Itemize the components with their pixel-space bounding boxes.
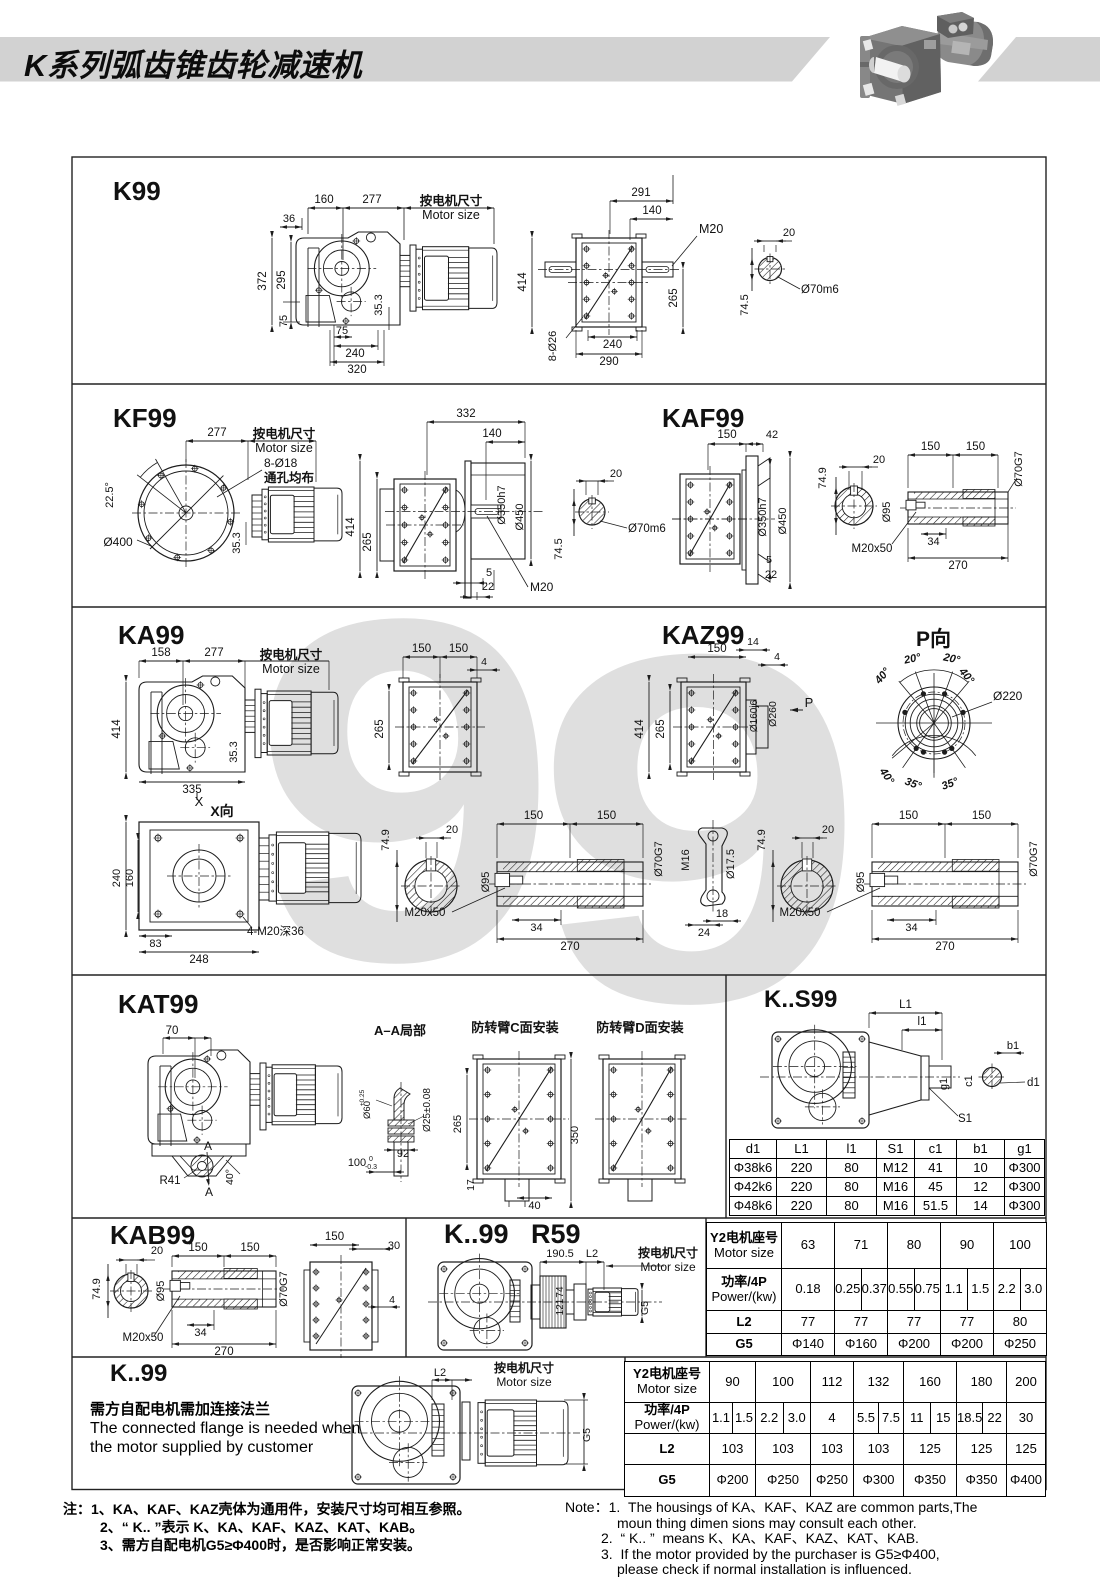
svg-text:24: 24: [698, 927, 710, 939]
svg-text:265: 265: [668, 288, 680, 307]
svg-text:4: 4: [774, 651, 780, 663]
svg-text:Ø450: Ø450: [514, 504, 526, 531]
svg-text:按电机尺寸: 按电机尺寸: [494, 1360, 554, 1375]
svg-text:265: 265: [452, 1115, 464, 1133]
svg-text:Ø95: Ø95: [480, 872, 492, 893]
svg-text:Ø25±0.08: Ø25±0.08: [422, 1088, 433, 1132]
svg-text:40: 40: [528, 1200, 540, 1212]
svg-text:c1: c1: [963, 1075, 975, 1087]
svg-text:42: 42: [766, 429, 778, 441]
svg-text:35.3: 35.3: [231, 532, 243, 553]
svg-text:414: 414: [111, 719, 123, 739]
svg-text:150: 150: [325, 1231, 344, 1243]
svg-text:Motor size: Motor size: [255, 441, 313, 455]
svg-text:8-Ø18: 8-Ø18: [264, 456, 298, 470]
svg-text:414: 414: [634, 719, 646, 739]
svg-text:248: 248: [189, 954, 208, 966]
svg-text:Motor size: Motor size: [262, 662, 320, 676]
svg-text:34: 34: [194, 1327, 206, 1339]
svg-text:M16: M16: [680, 849, 692, 870]
svg-text:240: 240: [111, 869, 123, 887]
svg-text:265: 265: [655, 719, 667, 738]
svg-text:0: 0: [369, 1156, 373, 1163]
svg-text:M20x50: M20x50: [123, 1332, 164, 1344]
svg-text:320: 320: [347, 364, 366, 376]
svg-text:4: 4: [481, 656, 487, 668]
svg-text:270: 270: [214, 1346, 233, 1358]
svg-text:150: 150: [899, 810, 918, 822]
svg-text:277: 277: [362, 194, 381, 206]
svg-text:Ø450: Ø450: [777, 508, 789, 535]
svg-text:20: 20: [610, 468, 622, 480]
svg-text:防转臂C面安装: 防转臂C面安装: [471, 1020, 558, 1035]
svg-text:X: X: [195, 794, 204, 809]
svg-text:Ø160j6: Ø160j6: [749, 699, 760, 732]
svg-text:40°: 40°: [956, 665, 977, 687]
svg-text:74.9: 74.9: [756, 829, 768, 850]
svg-text:Ø70G7: Ø70G7: [278, 1271, 290, 1306]
svg-text:100: 100: [348, 1157, 366, 1169]
svg-text:d1: d1: [1027, 1077, 1040, 1089]
svg-text:150: 150: [412, 643, 431, 655]
svg-text:18: 18: [716, 908, 728, 920]
svg-text:34: 34: [905, 922, 917, 934]
svg-text:A–A局部: A–A局部: [374, 1023, 426, 1038]
svg-text:350: 350: [569, 1126, 581, 1144]
svg-text:17: 17: [465, 1179, 477, 1191]
svg-text:34: 34: [927, 536, 939, 548]
svg-text:G5: G5: [639, 1301, 651, 1315]
svg-text:5: 5: [766, 554, 772, 566]
svg-text:20: 20: [822, 824, 834, 836]
svg-text:g1: g1: [938, 1078, 950, 1090]
svg-text:160: 160: [124, 869, 136, 887]
svg-text:Ø70m6: Ø70m6: [801, 284, 839, 296]
svg-text:40°: 40°: [224, 1169, 236, 1185]
svg-text:Ø220: Ø220: [993, 689, 1023, 703]
svg-text:414: 414: [345, 517, 357, 537]
svg-text:277: 277: [204, 647, 223, 659]
svg-text:8-Ø26: 8-Ø26: [547, 331, 559, 362]
svg-text:M20x50: M20x50: [405, 907, 446, 919]
svg-text:75: 75: [336, 325, 348, 337]
svg-text:20: 20: [873, 454, 885, 466]
svg-text:121: 121: [555, 1298, 566, 1315]
svg-text:L2: L2: [586, 1248, 598, 1260]
svg-text:70: 70: [166, 1025, 179, 1037]
svg-text:270: 270: [560, 941, 579, 953]
svg-text:-0.3: -0.3: [365, 1164, 377, 1171]
svg-text:按电机尺寸: 按电机尺寸: [638, 1245, 698, 1260]
svg-text:Motor size: Motor size: [496, 1375, 552, 1389]
svg-text:5: 5: [486, 567, 492, 579]
svg-text:240: 240: [345, 348, 364, 360]
svg-text:22.5°: 22.5°: [104, 482, 116, 508]
svg-text:30: 30: [388, 1240, 400, 1252]
svg-text:22: 22: [765, 569, 777, 581]
svg-text:150: 150: [972, 810, 991, 822]
svg-text:150: 150: [240, 1242, 259, 1254]
svg-text:20: 20: [446, 824, 458, 836]
svg-text:150: 150: [449, 643, 468, 655]
svg-text:414: 414: [517, 272, 529, 292]
svg-text:332: 332: [456, 408, 475, 420]
svg-text:Ø70G7: Ø70G7: [653, 841, 665, 876]
svg-text:140: 140: [482, 428, 501, 440]
svg-text:Ø95: Ø95: [155, 1281, 167, 1302]
svg-text:372: 372: [257, 271, 269, 290]
svg-text:l1: l1: [918, 1016, 927, 1028]
svg-text:74.9: 74.9: [817, 467, 829, 488]
svg-text:14: 14: [747, 636, 759, 648]
svg-text:Motor size: Motor size: [640, 1260, 696, 1274]
svg-text:X向: X向: [210, 803, 233, 819]
svg-text:74.5: 74.5: [553, 538, 565, 559]
svg-text:291: 291: [631, 187, 650, 199]
svg-text:S1: S1: [958, 1113, 972, 1125]
svg-text:4-M20深36: 4-M20深36: [247, 924, 304, 938]
svg-text:Ø400: Ø400: [103, 535, 133, 549]
svg-text:74.9: 74.9: [91, 1278, 103, 1299]
svg-text:4: 4: [389, 1294, 395, 1306]
svg-text:150: 150: [597, 810, 616, 822]
svg-text:按电机尺寸: 按电机尺寸: [420, 193, 483, 208]
svg-text:36: 36: [283, 213, 295, 225]
svg-text:M20: M20: [699, 222, 723, 236]
svg-text:35°: 35°: [940, 775, 960, 792]
svg-text:M20x50: M20x50: [780, 907, 821, 919]
svg-text:M20x50: M20x50: [852, 543, 893, 555]
svg-text:150: 150: [921, 441, 940, 453]
svg-text:L1: L1: [899, 999, 912, 1011]
svg-text:277: 277: [207, 427, 226, 439]
svg-text:Motor size: Motor size: [422, 208, 480, 222]
svg-text:92: 92: [397, 1148, 409, 1160]
svg-text:Ø70m6: Ø70m6: [628, 523, 666, 535]
svg-text:20°: 20°: [902, 651, 922, 667]
svg-text:35.3: 35.3: [228, 741, 240, 762]
svg-text:P: P: [805, 695, 814, 710]
svg-text:A: A: [204, 1139, 212, 1153]
svg-text:Ø260: Ø260: [767, 701, 779, 727]
svg-text:M20: M20: [530, 580, 554, 594]
svg-text:265: 265: [362, 532, 374, 551]
svg-text:150: 150: [524, 810, 543, 822]
svg-text:Ø70G7: Ø70G7: [1028, 841, 1040, 876]
svg-text:270: 270: [935, 941, 954, 953]
svg-text:通孔均布: 通孔均布: [264, 470, 315, 485]
svg-text:G5: G5: [581, 1428, 593, 1442]
svg-text:35°: 35°: [903, 776, 923, 793]
svg-text:防转臂D面安装: 防转臂D面安装: [596, 1020, 683, 1035]
svg-text:34: 34: [530, 922, 542, 934]
svg-text:R41: R41: [159, 1175, 180, 1187]
svg-text:74: 74: [555, 1286, 566, 1298]
svg-text:40°: 40°: [876, 765, 896, 787]
svg-text:Ø17.5: Ø17.5: [725, 849, 737, 879]
svg-text:Ø350h7: Ø350h7: [496, 485, 508, 524]
svg-text:Ø95: Ø95: [881, 502, 893, 523]
svg-text:b1: b1: [1007, 1040, 1019, 1052]
svg-text:Ø350h7: Ø350h7: [757, 497, 769, 536]
svg-text:A: A: [205, 1185, 213, 1199]
svg-text:40°: 40°: [872, 665, 893, 687]
svg-text:按电机尺寸: 按电机尺寸: [253, 426, 316, 441]
svg-text:35.3: 35.3: [373, 294, 385, 315]
svg-text:L2: L2: [434, 1367, 446, 1379]
svg-text:270: 270: [948, 560, 967, 572]
svg-text:83: 83: [149, 938, 161, 950]
svg-text:+0.25: +0.25: [359, 1089, 366, 1106]
svg-text:295: 295: [276, 270, 288, 289]
svg-text:按电机尺寸: 按电机尺寸: [260, 647, 323, 662]
svg-text:Ø95: Ø95: [855, 872, 867, 893]
svg-text:74.9: 74.9: [380, 829, 392, 850]
svg-text:240: 240: [603, 339, 622, 351]
svg-text:20: 20: [783, 227, 795, 239]
svg-text:265: 265: [374, 719, 386, 738]
svg-text:290: 290: [599, 356, 618, 368]
svg-text:20°: 20°: [941, 651, 961, 667]
svg-text:74.5: 74.5: [739, 294, 751, 315]
svg-text:140: 140: [642, 205, 661, 217]
svg-text:75: 75: [278, 315, 290, 327]
svg-text:150: 150: [966, 441, 985, 453]
svg-text:160: 160: [314, 194, 333, 206]
